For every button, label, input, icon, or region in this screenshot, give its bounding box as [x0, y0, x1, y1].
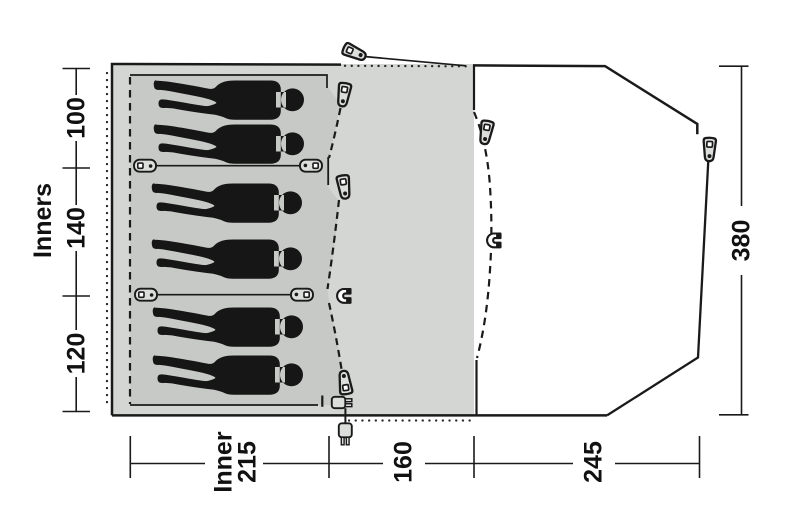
- svg-text:100: 100: [63, 97, 91, 139]
- svg-text:380: 380: [728, 220, 756, 262]
- svg-text:Inners: Inners: [29, 183, 57, 258]
- svg-text:140: 140: [63, 207, 91, 249]
- svg-text:215: 215: [234, 441, 262, 483]
- svg-text:120: 120: [63, 333, 91, 375]
- svg-text:160: 160: [390, 441, 418, 483]
- svg-text:245: 245: [580, 441, 608, 483]
